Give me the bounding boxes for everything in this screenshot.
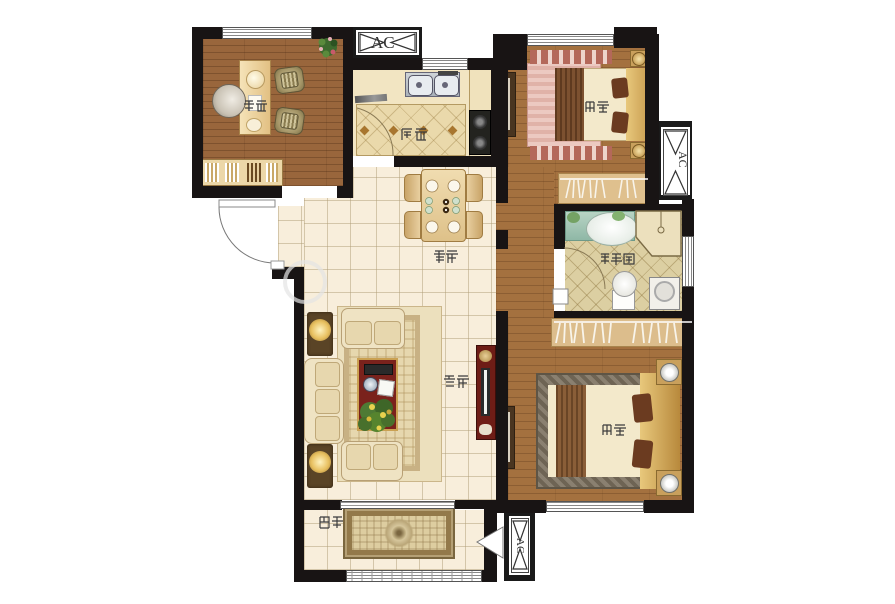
svg-text:AC: AC	[371, 33, 395, 52]
svg-text:AC: AC	[514, 538, 526, 553]
svg-text:AC: AC	[676, 151, 690, 168]
